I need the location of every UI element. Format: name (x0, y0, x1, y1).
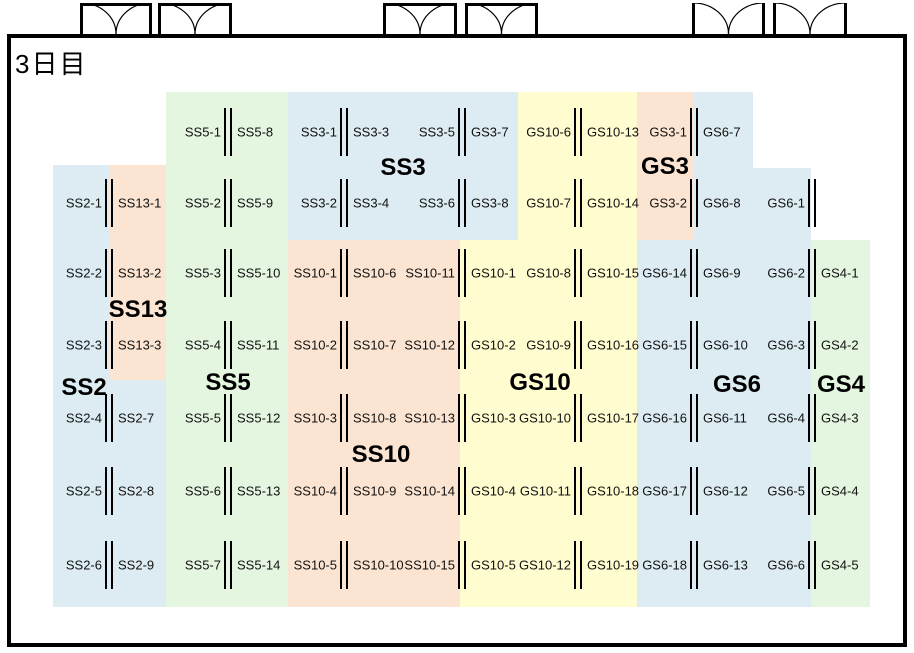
booth-divider-wall (808, 541, 816, 589)
booth-ss10-6: SS10-6 (353, 267, 396, 280)
booth-ss2-8: SS2-8 (118, 485, 154, 498)
booth-ss2-6: SS2-6 (66, 559, 102, 572)
booth-ss5-12: SS5-12 (237, 412, 280, 425)
booth-ss13-1: SS13-1 (118, 197, 161, 210)
booth-divider-wall (690, 321, 698, 369)
group-label-gs4: GS4 (817, 373, 865, 397)
booth-divider-wall (458, 394, 466, 442)
booth-gs4-4: GS4-4 (821, 485, 859, 498)
booth-ss13-3: SS13-3 (118, 339, 161, 352)
booth-gs6-11: GS6-11 (703, 412, 747, 425)
booth-ss3-1: SS3-1 (301, 126, 337, 139)
booth-gs4-2: GS4-2 (821, 339, 859, 352)
booth-divider-wall (808, 321, 816, 369)
booth-divider-wall (224, 394, 232, 442)
booth-gs10-17: GS10-17 (587, 412, 639, 425)
booth-divider-wall (574, 179, 582, 227)
booth-ss2-4: SS2-4 (66, 412, 102, 425)
booth-ss2-5: SS2-5 (66, 485, 102, 498)
booth-divider-wall (224, 321, 232, 369)
booth-ss3-3: SS3-3 (353, 126, 389, 139)
booth-divider-wall (808, 179, 816, 227)
booth-gs10-5: GS10-5 (471, 559, 516, 572)
booth-ss5-9: SS5-9 (237, 197, 273, 210)
booth-gs3-1: GS3-1 (649, 126, 687, 139)
door-symbol-icon (80, 3, 152, 34)
booth-gs6-16: GS6-16 (642, 412, 687, 425)
group-label-ss2: SS2 (61, 376, 106, 400)
booth-gs6-13: GS6-13 (703, 559, 748, 572)
booth-ss10-5: SS10-5 (294, 559, 337, 572)
booth-ss10-15: SS10-15 (404, 559, 455, 572)
booth-gs4-3: GS4-3 (821, 412, 859, 425)
booth-gs10-6: GS10-6 (526, 126, 571, 139)
booth-divider-wall (690, 249, 698, 297)
booth-gs6-4: GS6-4 (767, 412, 805, 425)
booth-ss10-14: SS10-14 (404, 485, 455, 498)
booth-divider-wall (808, 249, 816, 297)
booth-divider-wall (574, 249, 582, 297)
booth-ss5-13: SS5-13 (237, 485, 280, 498)
booth-gs10-9: GS10-9 (526, 339, 571, 352)
booth-gs10-2: GS10-2 (471, 339, 516, 352)
booth-divider-wall (224, 249, 232, 297)
group-label-ss13: SS13 (109, 298, 168, 322)
booth-gs6-7: GS6-7 (703, 126, 741, 139)
booth-ss5-11: SS5-11 (237, 339, 279, 352)
booth-ss5-2: SS5-2 (185, 197, 221, 210)
booth-gs6-10: GS6-10 (703, 339, 748, 352)
booth-divider-wall (458, 541, 466, 589)
booth-ss10-12: SS10-12 (404, 339, 455, 352)
booth-divider-wall (458, 467, 466, 515)
booth-gs10-1: GS10-1 (471, 267, 516, 280)
booth-divider-wall (340, 108, 348, 156)
booth-divider-wall (224, 541, 232, 589)
booth-divider-wall (808, 467, 816, 515)
booth-divider-wall (690, 467, 698, 515)
group-label-ss10: SS10 (352, 443, 411, 467)
booth-ss3-5: SS3-5 (419, 126, 455, 139)
booth-divider-wall (224, 467, 232, 515)
booth-gs6-6: GS6-6 (767, 559, 805, 572)
group-label-gs6: GS6 (713, 373, 761, 397)
booth-divider-wall (340, 321, 348, 369)
booth-ss5-10: SS5-10 (237, 267, 280, 280)
booth-divider-wall (574, 321, 582, 369)
booth-gs6-2: GS6-2 (767, 267, 805, 280)
booth-divider-wall (458, 108, 466, 156)
booth-gs10-12: GS10-12 (519, 559, 571, 572)
booth-gs10-8: GS10-8 (526, 267, 571, 280)
door-symbol-icon (773, 3, 847, 34)
booth-ss10-13: SS10-13 (404, 412, 455, 425)
booth-gs10-7: GS10-7 (526, 197, 571, 210)
booth-ss2-9: SS2-9 (118, 559, 154, 572)
page-title: 3日目 (15, 44, 87, 81)
booth-ss3-6: SS3-6 (419, 197, 455, 210)
booth-divider-wall (340, 394, 348, 442)
booth-gs6-8: GS6-8 (703, 197, 741, 210)
booth-divider-wall (458, 179, 466, 227)
floor-plan: 3日目 SS5-1SS5-8SS3-1SS3-3SS3-5GS3-7GS10-6… (0, 0, 914, 653)
booth-divider-wall (574, 108, 582, 156)
booth-divider-wall (105, 249, 113, 297)
booth-divider-wall (690, 179, 698, 227)
booth-ss5-5: SS5-5 (185, 412, 221, 425)
booth-gs6-5: GS6-5 (767, 485, 805, 498)
booth-ss3-4: SS3-4 (353, 197, 389, 210)
booth-gs3-2: GS3-2 (649, 197, 687, 210)
booth-gs6-3: GS6-3 (767, 339, 805, 352)
booth-ss10-4: SS10-4 (294, 485, 337, 498)
booth-gs6-17: GS6-17 (642, 485, 687, 498)
booth-ss5-4: SS5-4 (185, 339, 221, 352)
booth-divider-wall (340, 179, 348, 227)
booth-divider-wall (690, 108, 698, 156)
booth-gs6-15: GS6-15 (642, 339, 687, 352)
booth-ss2-2: SS2-2 (66, 267, 102, 280)
booth-ss5-7: SS5-7 (185, 559, 221, 572)
booth-ss5-14: SS5-14 (237, 559, 280, 572)
door-symbol-icon (383, 3, 457, 34)
booth-divider-wall (105, 321, 113, 369)
booth-gs10-16: GS10-16 (587, 339, 639, 352)
booth-divider-wall (808, 394, 816, 442)
booth-ss10-9: SS10-9 (353, 485, 396, 498)
booth-gs6-14: GS6-14 (642, 267, 687, 280)
door-symbol-icon (158, 3, 232, 34)
booth-divider-wall (105, 394, 113, 442)
booth-gs10-4: GS10-4 (471, 485, 516, 498)
booth-gs6-1: GS6-1 (767, 197, 805, 210)
booth-gs10-10: GS10-10 (519, 412, 571, 425)
booth-ss5-1: SS5-1 (185, 126, 221, 139)
booth-divider-wall (574, 467, 582, 515)
booth-divider-wall (574, 394, 582, 442)
group-label-ss5: SS5 (205, 371, 250, 395)
booth-ss3-2: SS3-2 (301, 197, 337, 210)
booth-ss10-10: SS10-10 (353, 559, 404, 572)
booth-gs10-18: GS10-18 (587, 485, 639, 498)
booth-divider-wall (105, 541, 113, 589)
booth-ss10-3: SS10-3 (294, 412, 337, 425)
booth-gs3-7: GS3-7 (471, 126, 509, 139)
booth-ss5-6: SS5-6 (185, 485, 221, 498)
booth-gs3-8: GS3-8 (471, 197, 509, 210)
booth-divider-wall (690, 394, 698, 442)
booth-gs4-1: GS4-1 (821, 267, 859, 280)
booth-gs6-9: GS6-9 (703, 267, 741, 280)
booth-gs6-12: GS6-12 (703, 485, 748, 498)
group-label-ss3: SS3 (380, 156, 425, 180)
booth-divider-wall (340, 541, 348, 589)
booth-gs10-3: GS10-3 (471, 412, 516, 425)
booth-gs10-14: GS10-14 (587, 197, 639, 210)
booth-divider-wall (340, 467, 348, 515)
booth-ss2-1: SS2-1 (66, 197, 102, 210)
door-symbol-icon (465, 3, 538, 34)
booth-ss5-8: SS5-8 (237, 126, 273, 139)
booth-ss13-2: SS13-2 (118, 267, 161, 280)
booth-divider-wall (340, 249, 348, 297)
booth-divider-wall (458, 249, 466, 297)
booth-ss10-1: SS10-1 (294, 267, 337, 280)
booth-divider-wall (458, 321, 466, 369)
booth-gs6-18: GS6-18 (642, 559, 687, 572)
booth-ss2-3: SS2-3 (66, 339, 102, 352)
booth-divider-wall (690, 541, 698, 589)
booth-ss2-7: SS2-7 (118, 412, 154, 425)
booth-gs10-19: GS10-19 (587, 559, 639, 572)
booth-divider-wall (574, 541, 582, 589)
door-symbol-icon (692, 3, 765, 34)
booth-ss10-7: SS10-7 (353, 339, 396, 352)
booth-gs10-11: GS10-11 (520, 485, 571, 498)
booth-ss10-11: SS10-11 (405, 267, 455, 280)
booth-gs10-15: GS10-15 (587, 267, 639, 280)
booth-ss10-8: SS10-8 (353, 412, 396, 425)
booth-divider-wall (224, 179, 232, 227)
booth-gs10-13: GS10-13 (587, 126, 639, 139)
booth-divider-wall (105, 179, 113, 227)
group-label-gs10: GS10 (509, 371, 570, 395)
booth-divider-wall (105, 467, 113, 515)
booth-ss5-3: SS5-3 (185, 267, 221, 280)
booth-ss10-2: SS10-2 (294, 339, 337, 352)
group-label-gs3: GS3 (641, 155, 689, 179)
booth-gs4-5: GS4-5 (821, 559, 859, 572)
booth-divider-wall (224, 108, 232, 156)
